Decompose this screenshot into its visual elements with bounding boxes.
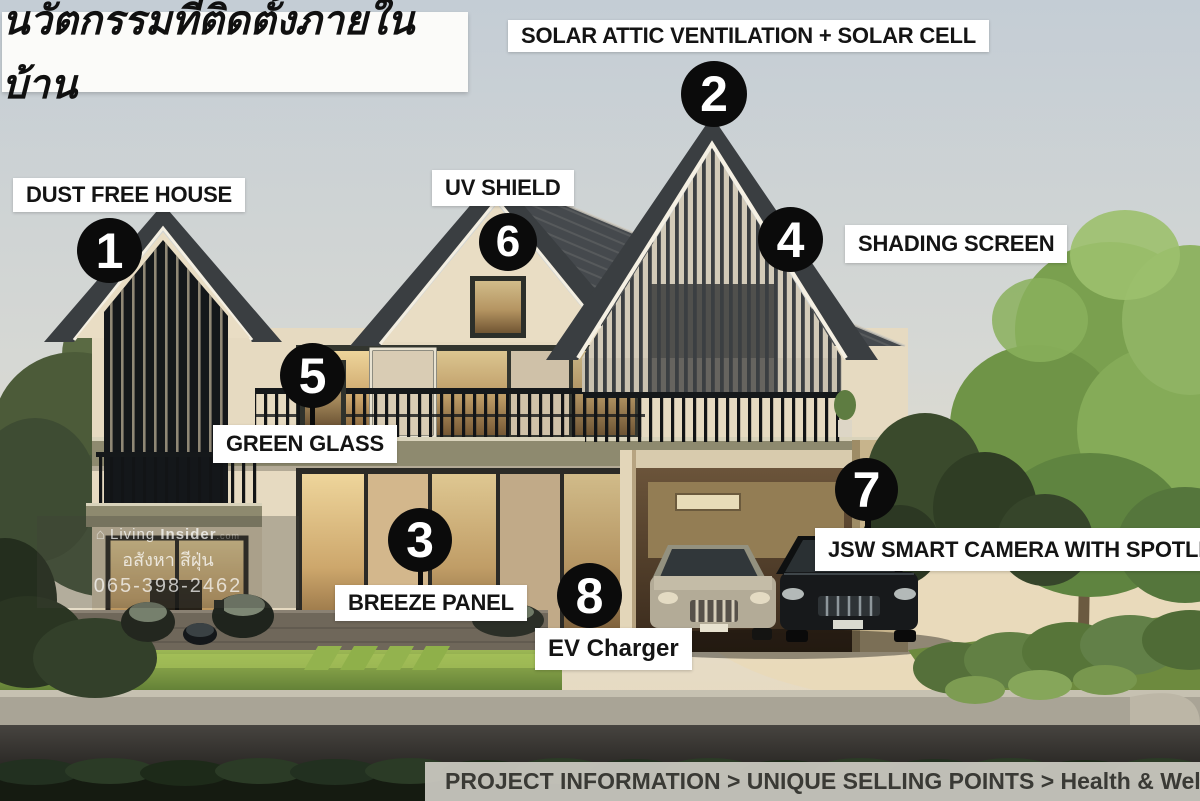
breadcrumb-bar: PROJECT INFORMATION > UNIQUE SELLING POI… [425, 762, 1200, 801]
marker-8-ev-charger: 8 [557, 563, 622, 628]
label-breeze-panel: BREEZE PANEL [335, 585, 527, 621]
watermark-brand-light: Living [110, 526, 155, 543]
marker-6-uv-shield: 6 [479, 213, 537, 271]
marker-5-green-glass: 5 [280, 343, 345, 408]
watermark-brand-bold: Insider [160, 526, 216, 543]
watermark-brand-suffix: .com [217, 531, 241, 541]
watermark-brand: ⌂Living Insider.com [96, 526, 240, 543]
watermark-line2: อสังหา สีฝุ่น [122, 545, 213, 574]
watermark: ⌂Living Insider.com อสังหา สีฝุ่น 065-39… [37, 516, 299, 608]
marker-4-shading-screen: 4 [758, 207, 823, 272]
slide: นวัตกรรมที่ติดตั้งภายในบ้าน 1 2 3 4 5 6 … [0, 0, 1200, 801]
label-smart-camera: JSW SMART CAMERA WITH SPOTLIGHT [815, 528, 1200, 571]
slide-title: นวัตกรรมที่ติดตั้งภายในบ้าน [2, 12, 468, 92]
marker-3-breeze-panel: 3 [388, 508, 452, 572]
label-ev-charger: EV Charger [535, 628, 692, 670]
label-green-glass: GREEN GLASS [213, 425, 397, 463]
house-illustration [0, 0, 1200, 801]
breadcrumb-text: PROJECT INFORMATION > UNIQUE SELLING POI… [445, 768, 1200, 795]
marker-2-solar-attic: 2 [681, 61, 747, 127]
label-shading-screen: SHADING SCREEN [845, 225, 1067, 263]
label-solar-attic-ventilation: SOLAR ATTIC VENTILATION + SOLAR CELL [508, 20, 989, 52]
label-dust-free-house: DUST FREE HOUSE [13, 178, 245, 212]
marker-1-dust-free-house: 1 [77, 218, 142, 283]
watermark-phone: 065-398-2462 [94, 575, 243, 598]
living-insider-logo-icon: ⌂ [96, 526, 106, 543]
label-uv-shield: UV SHIELD [432, 170, 574, 206]
marker-7-smart-camera: 7 [835, 458, 898, 521]
